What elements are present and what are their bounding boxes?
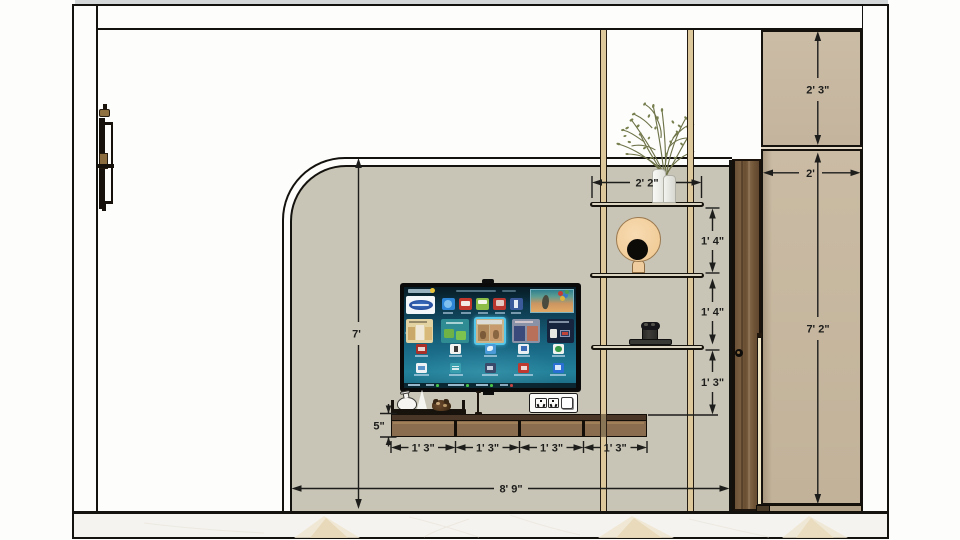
svg-text:1' 4": 1' 4" xyxy=(701,236,724,248)
svg-text:1' 3": 1' 3" xyxy=(701,377,724,389)
svg-text:1' 4": 1' 4" xyxy=(701,307,724,319)
svg-text:7' 2": 7' 2" xyxy=(806,324,829,336)
svg-text:2': 2' xyxy=(806,168,815,180)
svg-text:1' 3": 1' 3" xyxy=(540,443,563,455)
svg-text:1' 3": 1' 3" xyxy=(476,443,499,455)
svg-text:2' 2": 2' 2" xyxy=(635,178,658,190)
svg-text:7': 7' xyxy=(352,329,361,341)
svg-text:1' 3": 1' 3" xyxy=(412,443,435,455)
svg-text:5": 5" xyxy=(373,421,384,433)
svg-text:1' 3": 1' 3" xyxy=(604,443,627,455)
svg-text:8' 9": 8' 9" xyxy=(499,484,522,496)
svg-text:2' 3": 2' 3" xyxy=(806,85,829,97)
